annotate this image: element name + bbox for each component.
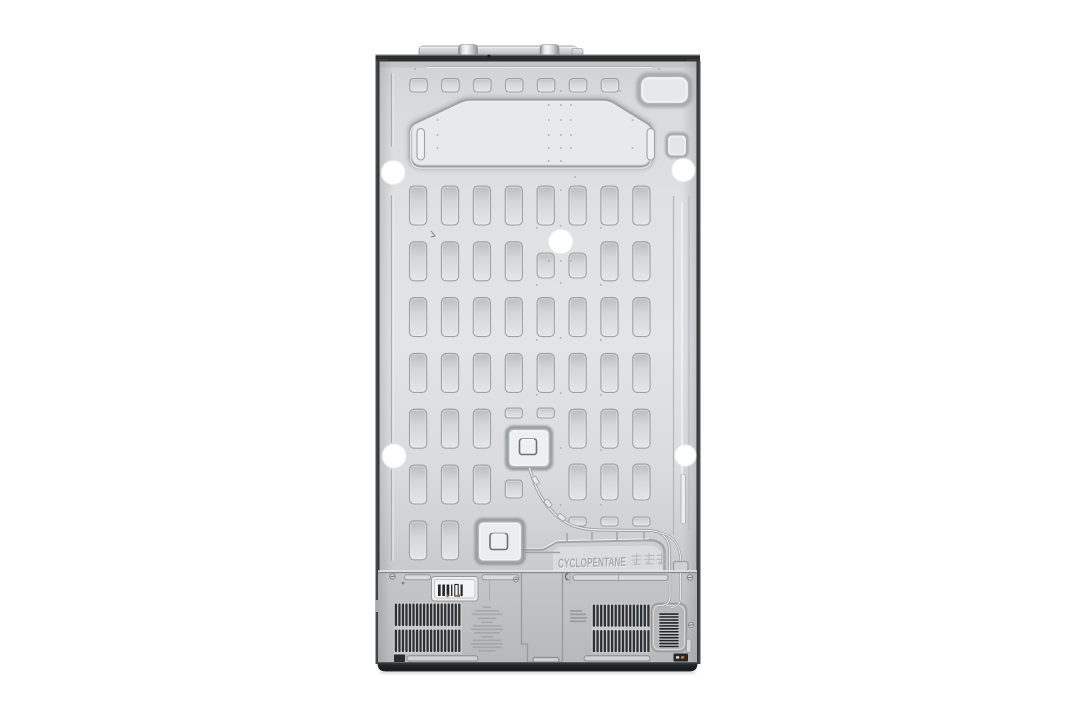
svg-text:CYCLOPENTANE: CYCLOPENTANE (558, 554, 627, 571)
